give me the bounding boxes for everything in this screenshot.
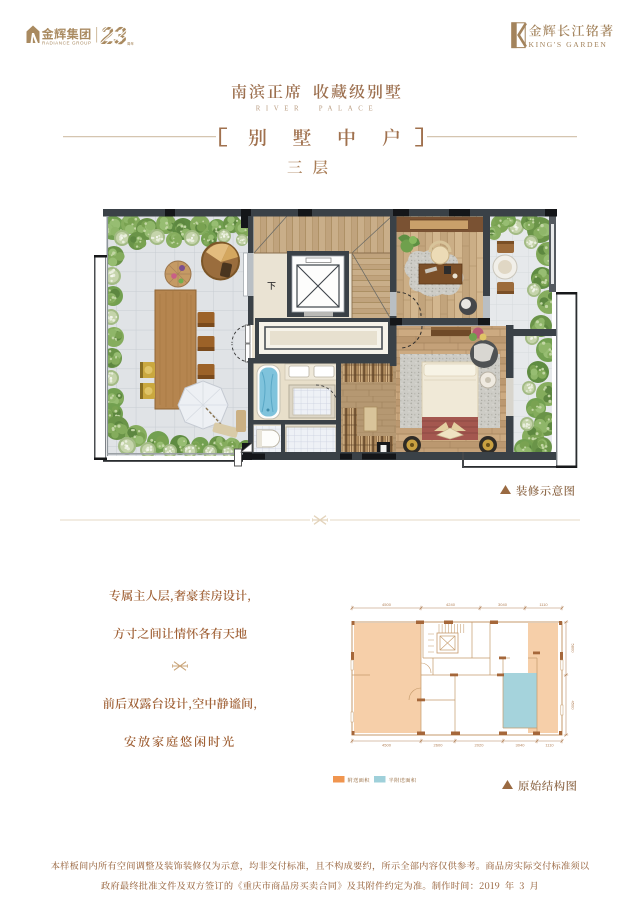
svg-text:23: 23 <box>99 23 128 50</box>
svg-text:2600: 2600 <box>434 742 444 747</box>
svg-text:2020: 2020 <box>475 742 485 747</box>
svg-text:RIVER PALACE: RIVER PALACE <box>256 106 378 113</box>
svg-text:3040: 3040 <box>498 602 508 607</box>
svg-text:1110: 1110 <box>545 742 554 747</box>
svg-text:RADIANCE GROUP: RADIANCE GROUP <box>42 41 92 46</box>
svg-text:4500: 4500 <box>382 742 392 747</box>
svg-text:KING'S GARDEN: KING'S GARDEN <box>529 40 608 49</box>
svg-text:4240: 4240 <box>446 602 456 607</box>
svg-text:1110: 1110 <box>539 602 548 607</box>
svg-text:4500: 4500 <box>571 701 576 711</box>
svg-text:4500: 4500 <box>382 602 392 607</box>
svg-text:3040: 3040 <box>516 742 526 747</box>
svg-text:5800: 5800 <box>571 644 576 654</box>
